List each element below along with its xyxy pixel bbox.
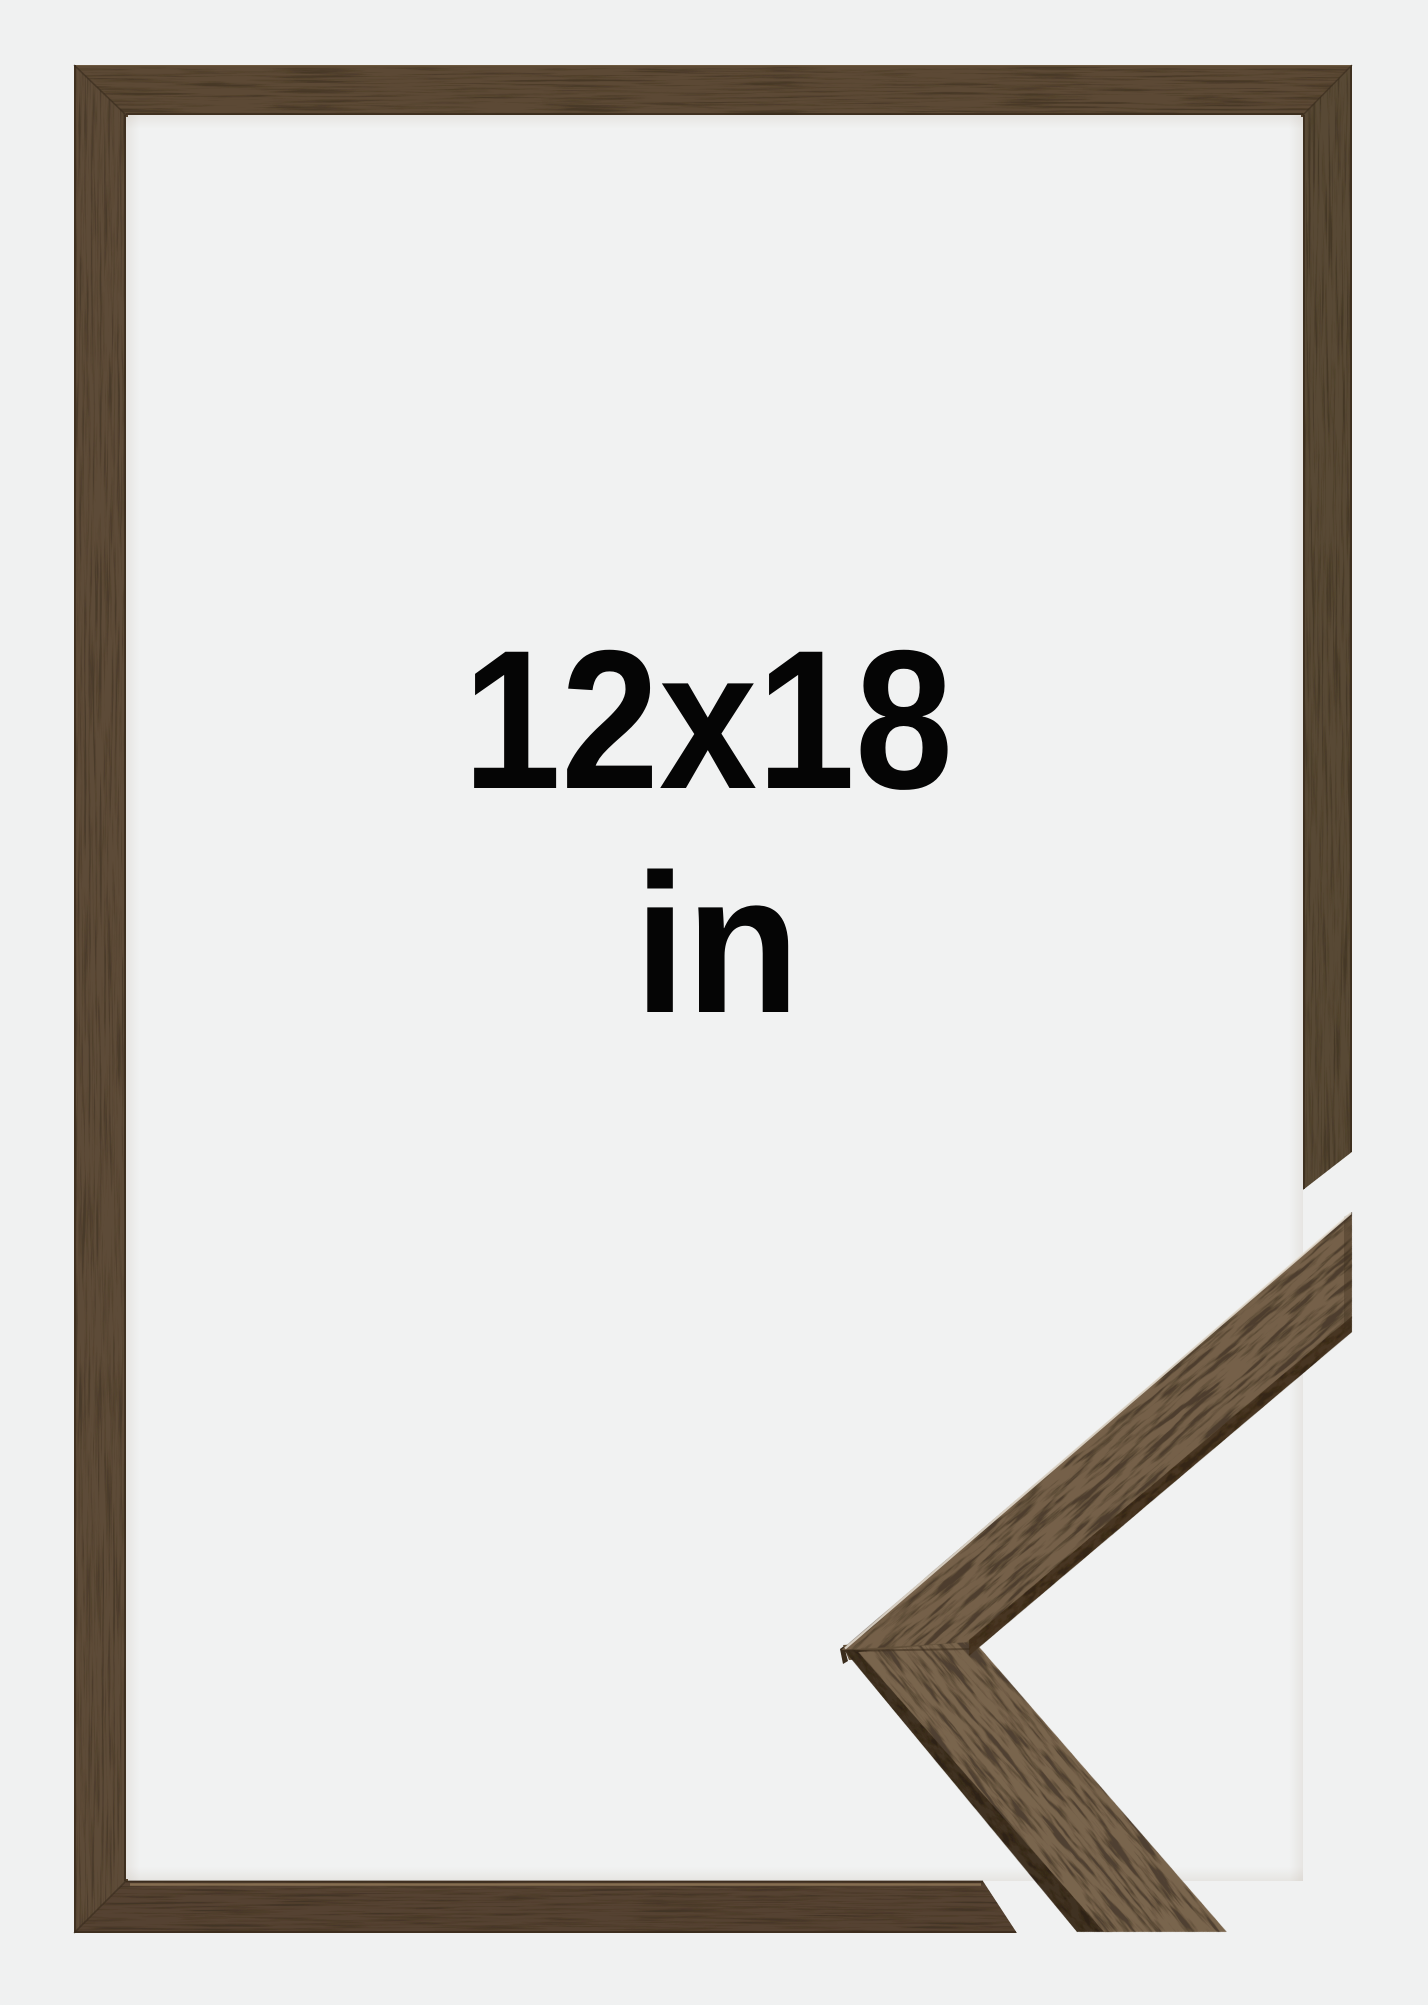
svg-text:in: in (634, 833, 799, 1055)
svg-text:12x18: 12x18 (463, 608, 953, 830)
